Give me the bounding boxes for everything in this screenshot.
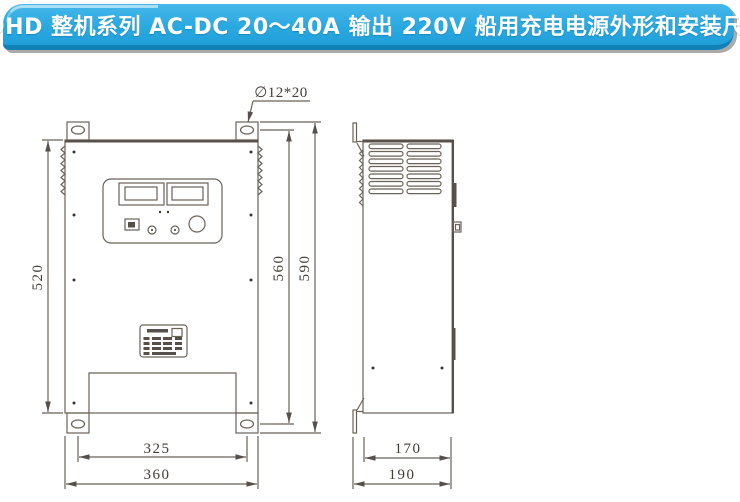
dim-width-hole-spacing: 325 — [144, 441, 171, 457]
technical-drawing: 520 560 590 325 360 ∅12*20 — [0, 0, 740, 502]
front-view — [61, 122, 262, 433]
latch — [453, 222, 461, 232]
meter-right — [167, 183, 208, 205]
mounting-ear-bottom-left — [67, 413, 89, 433]
adjust-pot-right — [171, 226, 179, 234]
hole-callout-text: ∅12*20 — [254, 85, 308, 101]
meter-left — [119, 183, 164, 205]
screw-side-left — [372, 367, 375, 370]
dim-depth-overall: 190 — [389, 467, 416, 483]
side-view — [353, 123, 461, 433]
dim-height-body: 520 — [30, 264, 46, 291]
terminal-recess — [89, 373, 236, 413]
power-switch — [125, 219, 139, 230]
mounting-ear-top-right — [236, 122, 258, 140]
side-dimensions: 170 190 — [353, 437, 451, 489]
screw-side-right — [441, 367, 444, 370]
dim-height-hole-spacing: 560 — [271, 255, 287, 282]
indicator-led-right — [167, 211, 169, 213]
screws-front — [73, 151, 253, 405]
hole-callout: ∅12*20 — [248, 85, 310, 122]
dim-height-overall: 590 — [297, 255, 313, 282]
indicator-led-left — [159, 211, 161, 213]
nameplate — [140, 325, 187, 357]
hinge-upper — [452, 183, 457, 207]
vent-louvers — [369, 144, 441, 194]
vent-fins-right — [258, 146, 262, 195]
adjust-pot-left — [148, 226, 156, 234]
dim-width-overall: 360 — [144, 467, 171, 483]
control-knob — [189, 216, 205, 232]
hinge-lower — [452, 328, 456, 360]
front-body — [65, 140, 258, 413]
page: CDHD 整机系列 AC-DC 20～40A 输出 220V 船用充电电源外形和… — [0, 0, 740, 502]
mounting-ear-top-left — [67, 122, 89, 140]
dim-depth-body: 170 — [395, 441, 422, 457]
bracket-bottom — [353, 398, 364, 433]
front-dimensions: 520 560 590 325 360 ∅12*20 — [30, 85, 321, 489]
front-panel — [103, 179, 222, 243]
mounting-ear-bottom-right — [236, 413, 258, 433]
